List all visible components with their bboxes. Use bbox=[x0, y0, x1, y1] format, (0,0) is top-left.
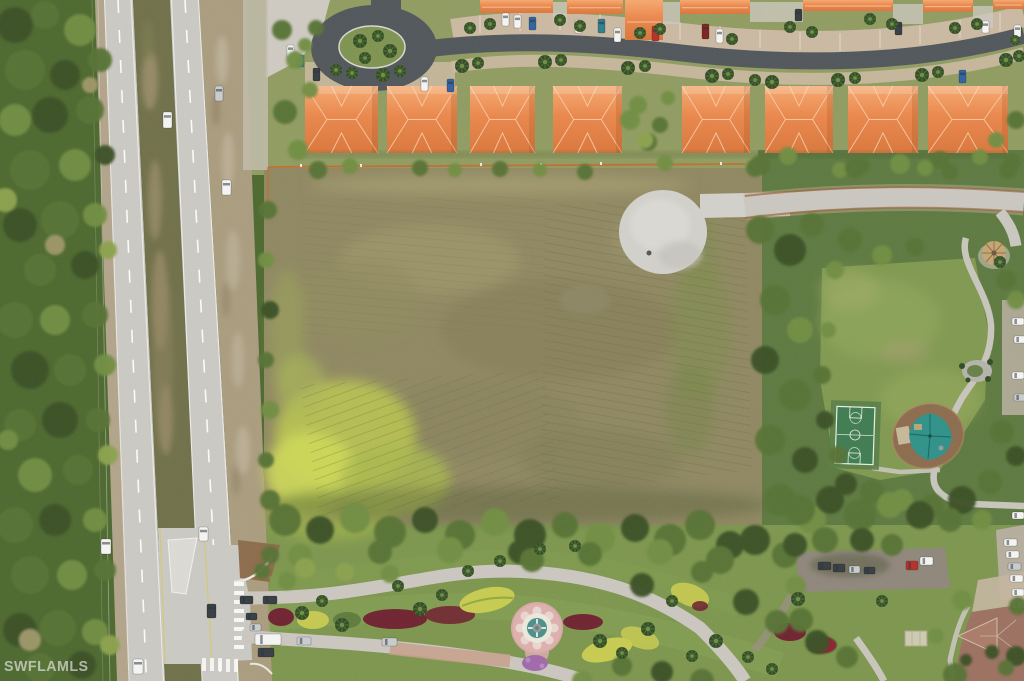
aerial-photo-canvas bbox=[0, 0, 1024, 681]
aerial-listing-photo: SWFLAMLS bbox=[0, 0, 1024, 681]
photo-grain bbox=[0, 0, 1024, 681]
mls-watermark: SWFLAMLS bbox=[4, 658, 89, 675]
